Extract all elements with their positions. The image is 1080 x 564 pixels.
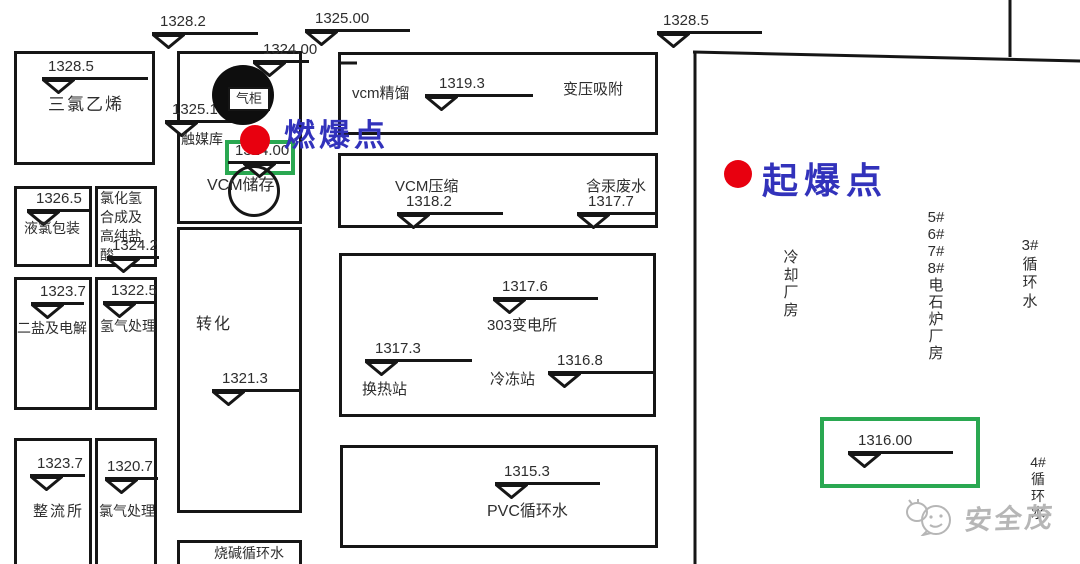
facility-label-salt-and-electrolysis: 二盐及电解 bbox=[17, 320, 87, 336]
elevation-marker-conversion: 1321.3 bbox=[212, 370, 301, 392]
elevation-triangle-icon bbox=[365, 361, 398, 376]
elevation-triangle-icon bbox=[657, 33, 690, 48]
elevation-marker-top-1328-5: 1328.5 bbox=[657, 12, 762, 34]
elevation-value: 1317.6 bbox=[502, 278, 598, 296]
elevation-marker-top-1328-2: 1328.2 bbox=[152, 13, 258, 35]
elevation-triangle-icon bbox=[31, 304, 64, 319]
elevation-triangle-icon bbox=[42, 79, 75, 94]
facility-label-gas-holder: 气柜 bbox=[228, 87, 270, 111]
elevation-triangle-icon bbox=[30, 476, 63, 491]
elevation-value: 1316.8 bbox=[557, 352, 656, 370]
elevation-marker-vcm-distillation: 1319.3 bbox=[425, 75, 533, 97]
elevation-marker-salt-and-electrolysis: 1323.7 bbox=[31, 283, 84, 305]
watermark: 安全茂 bbox=[903, 497, 1055, 536]
facility-label-trichloroethylene: 三氯乙烯 bbox=[48, 95, 124, 115]
facility-label-psa: 变压吸附 bbox=[563, 81, 623, 98]
elevation-marker-top-1325-00: 1325.00 bbox=[305, 10, 410, 32]
facility-label-rectifier-station: 整流所 bbox=[33, 503, 84, 520]
elevation-marker-highlight-1316-00: 1316.00 bbox=[848, 432, 953, 454]
facility-label-cooling-plant: 冷却厂房 bbox=[780, 249, 802, 319]
elevation-value: 1322.5 bbox=[111, 282, 157, 300]
elevation-marker-liquid-chlorine-packing: 1326.5 bbox=[27, 190, 90, 212]
elevation-marker-vcm-compression: 1318.2 bbox=[397, 193, 503, 215]
elevation-marker-pvc-cooling-water: 1315.3 bbox=[495, 463, 600, 485]
elevation-value: 1325.00 bbox=[315, 10, 410, 28]
facility-label-substation-303: 303变电所 bbox=[487, 317, 557, 334]
elevation-triangle-icon bbox=[107, 258, 140, 273]
detonation-point-label: 起爆点 bbox=[762, 152, 888, 204]
elevation-value: 1328.5 bbox=[663, 12, 762, 30]
elevation-value: 1317.3 bbox=[375, 340, 472, 358]
elevation-triangle-icon bbox=[548, 373, 581, 388]
facility-label-vcm-distillation: vcm精馏 bbox=[352, 85, 410, 102]
elevation-marker-chlorine-treatment: 1320.7 bbox=[105, 458, 158, 480]
elevation-value: 1328.5 bbox=[48, 58, 148, 76]
facility-label-conversion: 转化 bbox=[196, 316, 232, 334]
elevation-marker-heat-exchange-station: 1317.3 bbox=[365, 340, 472, 362]
facility-label-caustic-cooling-water: 烧碱循环水 bbox=[214, 545, 284, 561]
elevation-value: 1323.7 bbox=[37, 455, 85, 473]
watermark-mascot-icon bbox=[903, 498, 961, 536]
elevation-value: 1321.3 bbox=[222, 370, 301, 388]
elevation-marker-rectifier-station: 1323.7 bbox=[30, 455, 85, 477]
elevation-triangle-icon bbox=[152, 34, 185, 49]
elevation-value: 1316.00 bbox=[858, 432, 953, 450]
facility-label-pvc-cooling-water: PVC循环水 bbox=[487, 503, 568, 521]
facility-label-chlorine-treatment: 氯气处理 bbox=[99, 503, 155, 519]
facility-label-cooling-water-3: 3#循环水 bbox=[1019, 237, 1041, 311]
elevation-value: 1328.2 bbox=[160, 13, 258, 31]
facility-box-chlorine-treatment bbox=[95, 438, 157, 564]
elevation-marker-trichloroethylene: 1328.5 bbox=[42, 58, 148, 80]
elevation-marker-substation-303: 1317.6 bbox=[493, 278, 598, 300]
elevation-value: 1315.3 bbox=[504, 463, 600, 481]
elevation-marker-hcl-synthesis: 1324.2 bbox=[107, 237, 159, 259]
facility-label-catalyst-warehouse: 触媒库 bbox=[181, 131, 223, 147]
elevation-triangle-icon bbox=[105, 479, 138, 494]
elevation-value: 1324.00 bbox=[263, 41, 309, 59]
detonation-point-dot bbox=[724, 160, 752, 188]
elevation-value: 1323.7 bbox=[40, 283, 84, 301]
elevation-triangle-icon bbox=[577, 214, 610, 229]
elevation-marker-hydrogen-treatment: 1322.5 bbox=[103, 282, 157, 304]
elevation-triangle-icon bbox=[495, 484, 528, 499]
facility-label-refrigeration-station: 冷冻站 bbox=[490, 371, 535, 388]
elevation-value: 1318.2 bbox=[406, 193, 503, 211]
elevation-triangle-icon bbox=[493, 299, 526, 314]
elevation-triangle-icon bbox=[425, 96, 458, 111]
elevation-triangle-icon bbox=[397, 214, 430, 229]
facility-label-heat-exchange-station: 换热站 bbox=[362, 381, 407, 398]
elevation-value: 1317.7 bbox=[588, 193, 657, 211]
facility-label-carbide-furnace-plant: 5#6#7#8#电石炉厂房 bbox=[925, 209, 947, 362]
elevation-value: 1319.3 bbox=[439, 75, 533, 93]
plant-layout-diagram: 1328.2 1325.00 1324.00 1328.5 1328.5 三氯乙… bbox=[0, 0, 1080, 564]
elevation-triangle-icon bbox=[103, 303, 136, 318]
facility-label-liquid-chlorine-packing: 液氯包装 bbox=[24, 220, 80, 236]
elevation-triangle-icon bbox=[848, 453, 881, 468]
elevation-value: 1324.2 bbox=[112, 237, 159, 255]
facility-label-hydrogen-treatment: 氢气处理 bbox=[100, 318, 156, 334]
elevation-marker-top-1324-00: 1324.00 bbox=[253, 41, 309, 63]
elevation-marker-refrigeration-station: 1316.8 bbox=[548, 352, 656, 374]
elevation-marker-mercury-wastewater: 1317.7 bbox=[577, 193, 657, 215]
elevation-triangle-icon bbox=[212, 391, 245, 406]
elevation-value: 1326.5 bbox=[36, 190, 90, 208]
elevation-value: 1320.7 bbox=[107, 458, 158, 476]
ignition-point-dot bbox=[240, 125, 270, 155]
watermark-text: 安全茂 bbox=[963, 495, 1058, 537]
facility-label-vcm-storage: VCM储存 bbox=[207, 177, 275, 195]
ignition-point-label: 燃爆点 bbox=[284, 110, 389, 155]
